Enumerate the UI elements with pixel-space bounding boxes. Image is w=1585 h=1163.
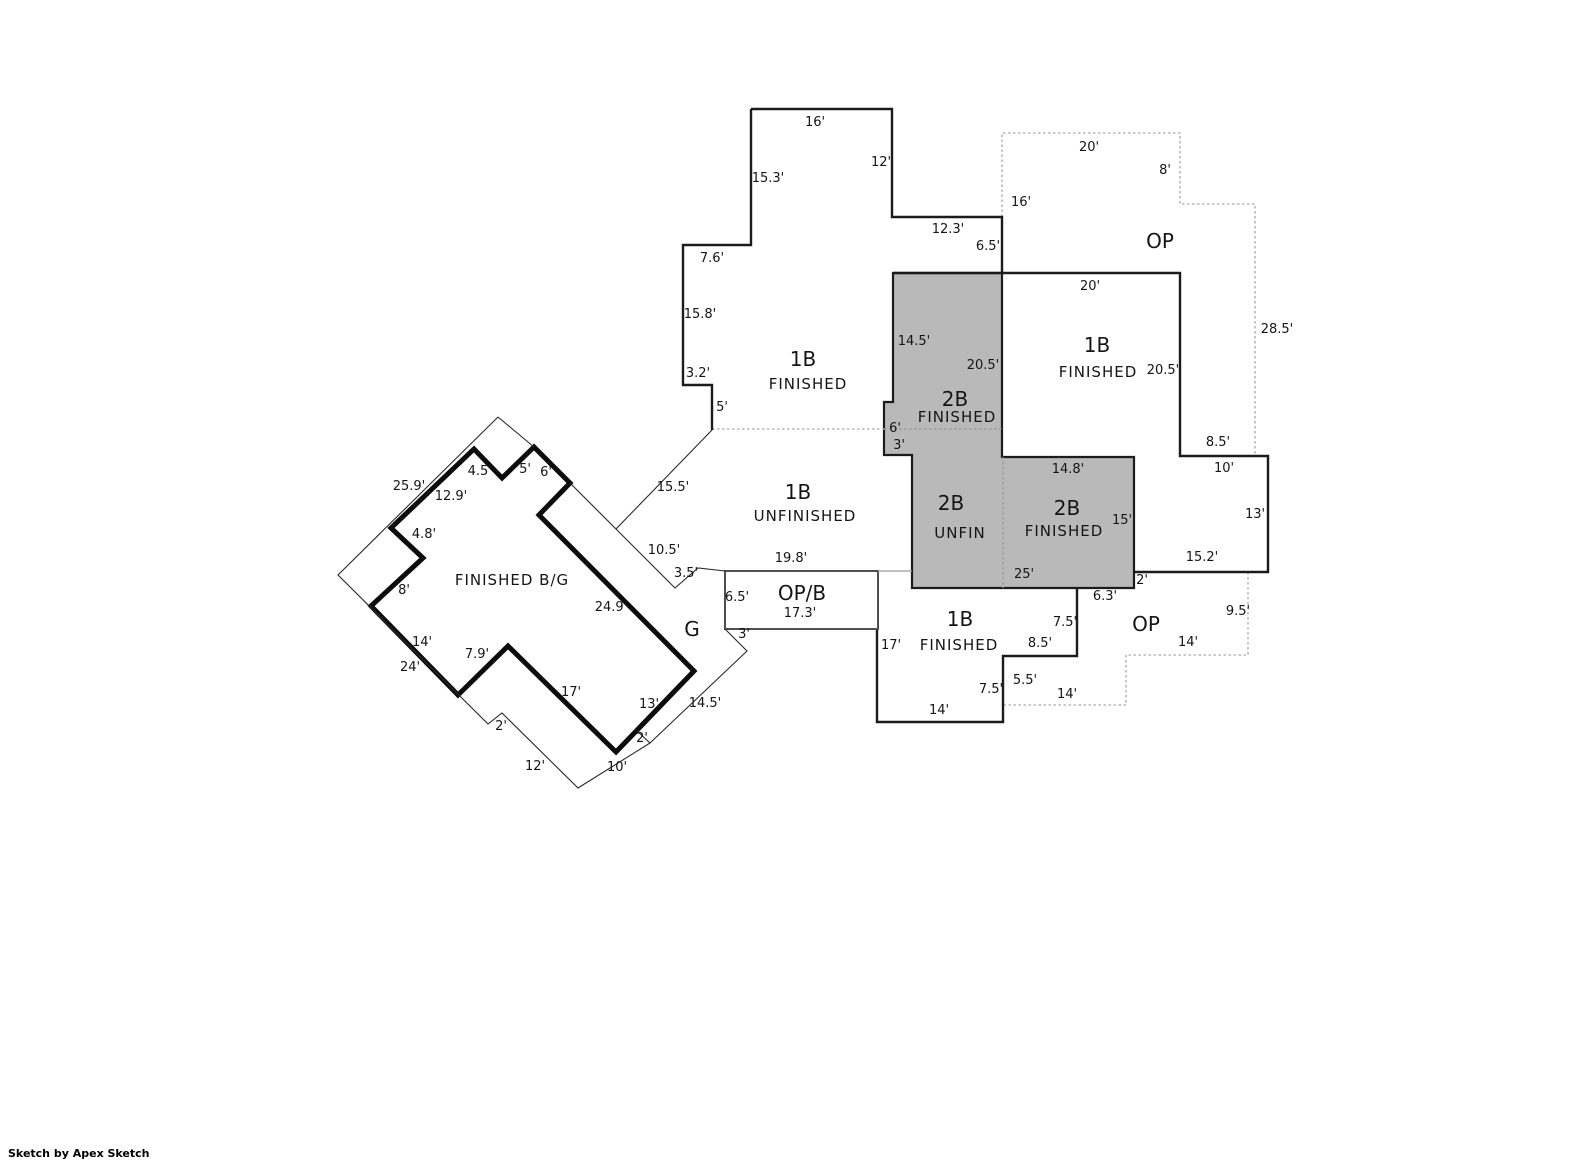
room-op-lower: OP [1132,612,1160,636]
dimension-label: 7.5' [1053,615,1077,630]
dimension-label: 20.5' [967,358,1000,373]
dimension-label: 2' [636,731,648,746]
dimension-label: 3' [738,627,750,642]
dimension-label: 8' [1159,163,1171,178]
sketch-page: 1BFINISHED2BFINISHED1BFINISHED2BUNFIN2BF… [0,0,1585,1163]
dimension-label: 14' [412,635,432,650]
dimension-label: 24' [400,660,420,675]
room-1b-unfinished: UNFINISHED [754,507,857,525]
dimension-label: 8.5' [1206,435,1230,450]
dimension-label: 8' [398,583,410,598]
dimension-label: 5' [716,400,728,415]
dimension-label: 10' [1214,461,1234,476]
floor-plan-canvas: 1BFINISHED2BFINISHED1BFINISHED2BUNFIN2BF… [0,0,1585,1163]
op-upper-outline [1002,133,1255,456]
dimension-label: 15.8' [684,307,717,322]
dimension-label: 7.6' [700,251,724,266]
dimension-label: 24.9' [595,600,628,615]
room-1b-finished-right: 1B [1084,333,1110,357]
room-1b-finished-lower: FINISHED [920,636,999,654]
dimension-label: 2' [495,719,507,734]
dimension-label: 5' [519,462,531,477]
dimension-label: 2' [1136,573,1148,588]
room-1b-finished-right: FINISHED [1059,363,1138,381]
dimension-label: 14.8' [1052,462,1085,477]
wall-upper-left [751,109,1002,273]
dimension-label: 6.5' [725,590,749,605]
dimension-label: 3.5' [674,566,698,581]
dimension-label: 16' [1011,195,1031,210]
dimension-label: 9.5' [1226,604,1250,619]
dimension-label: 28.5' [1261,322,1294,337]
dimension-label: 17' [561,685,581,700]
wall-upper-left-west [683,109,751,430]
dimension-label: 13' [1245,507,1265,522]
dimension-label: 16' [805,115,825,130]
dimension-label: 12.9' [435,489,468,504]
dimension-label: 15.3' [752,171,785,186]
dimension-label: 15.5' [657,480,690,495]
dimension-label: 7.9' [465,647,489,662]
room-1b-finished-upper: 1B [790,347,816,371]
dimension-label: 12.3' [932,222,965,237]
dimension-label: 3' [893,438,905,453]
dimension-label: 17' [881,638,901,653]
dimension-label: 20' [1079,140,1099,155]
room-2b-finished-right: 2B [1054,496,1080,520]
dimension-labels: 16'12'15.3'12.3'6.5'7.6'15.8'3.2'5'20'8'… [393,115,1294,775]
room-2b-unfin: UNFIN [934,524,985,542]
room-op-upper: OP [1146,229,1174,253]
dimension-label: 7.5' [979,682,1003,697]
dimension-label: 5.5' [1013,673,1037,688]
room-finished-bg: FINISHED B/G [455,571,569,589]
room-2b-unfin: 2B [938,491,964,515]
gray-2b-region [884,273,1134,588]
dimension-label: 10' [607,760,627,775]
room-1b-finished-lower: 1B [947,607,973,631]
dimension-label: 25.9' [393,479,426,494]
dimension-label: 6' [889,421,901,436]
room-garage: G [684,617,700,641]
room-1b-unfinished: 1B [785,480,811,504]
dimension-label: 25' [1014,567,1034,582]
dimension-label: 14.5' [689,696,722,711]
room-1b-finished-upper: FINISHED [769,375,848,393]
room-2b-finished-right: FINISHED [1025,522,1104,540]
dimension-label: 3.2' [686,366,710,381]
dimension-label: 15.2' [1186,550,1219,565]
dimension-label: 6.5' [976,239,1000,254]
dimension-label: 19.8' [775,551,808,566]
dimension-label: 12' [525,759,545,774]
dimension-label: 6.3' [1093,589,1117,604]
top-tip-cap [498,417,534,447]
dimension-label: 4.8' [412,527,436,542]
garage-north-connector [570,483,616,529]
dimension-label: 14' [1178,635,1198,650]
dimension-label: 14' [1057,687,1077,702]
dimension-label: 20.5' [1147,363,1180,378]
dimension-label: 4.5 [468,464,489,479]
dimension-label: 10.5' [648,543,681,558]
dimension-label: 6' [540,465,552,480]
room-op-b-dimension: 17.3' [784,606,817,621]
dimension-label: 12' [871,155,891,170]
dimension-label: 13' [639,697,659,712]
dimension-label: 8.5' [1028,636,1052,651]
app-credit: Sketch by Apex Sketch [8,1147,150,1160]
room-2b-finished-center: FINISHED [918,408,997,426]
dimension-label: 14.5' [898,334,931,349]
room-op-b: OP/B [778,581,826,605]
dimension-label: 20' [1080,279,1100,294]
unfinished-west-notch [616,430,725,588]
dimension-label: 15' [1112,513,1132,528]
dimension-label: 14' [929,703,949,718]
